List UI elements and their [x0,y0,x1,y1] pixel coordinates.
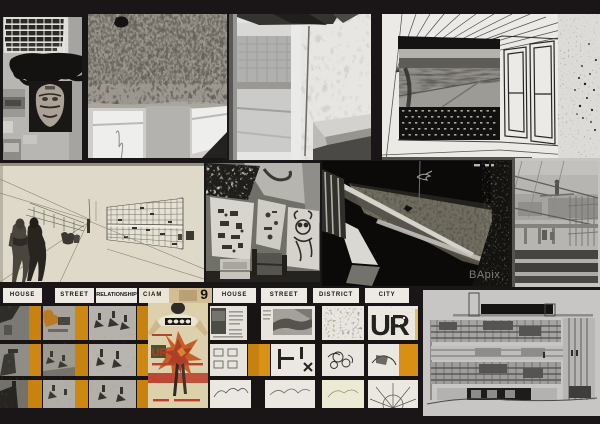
svg-text:UR: UR [152,347,168,359]
